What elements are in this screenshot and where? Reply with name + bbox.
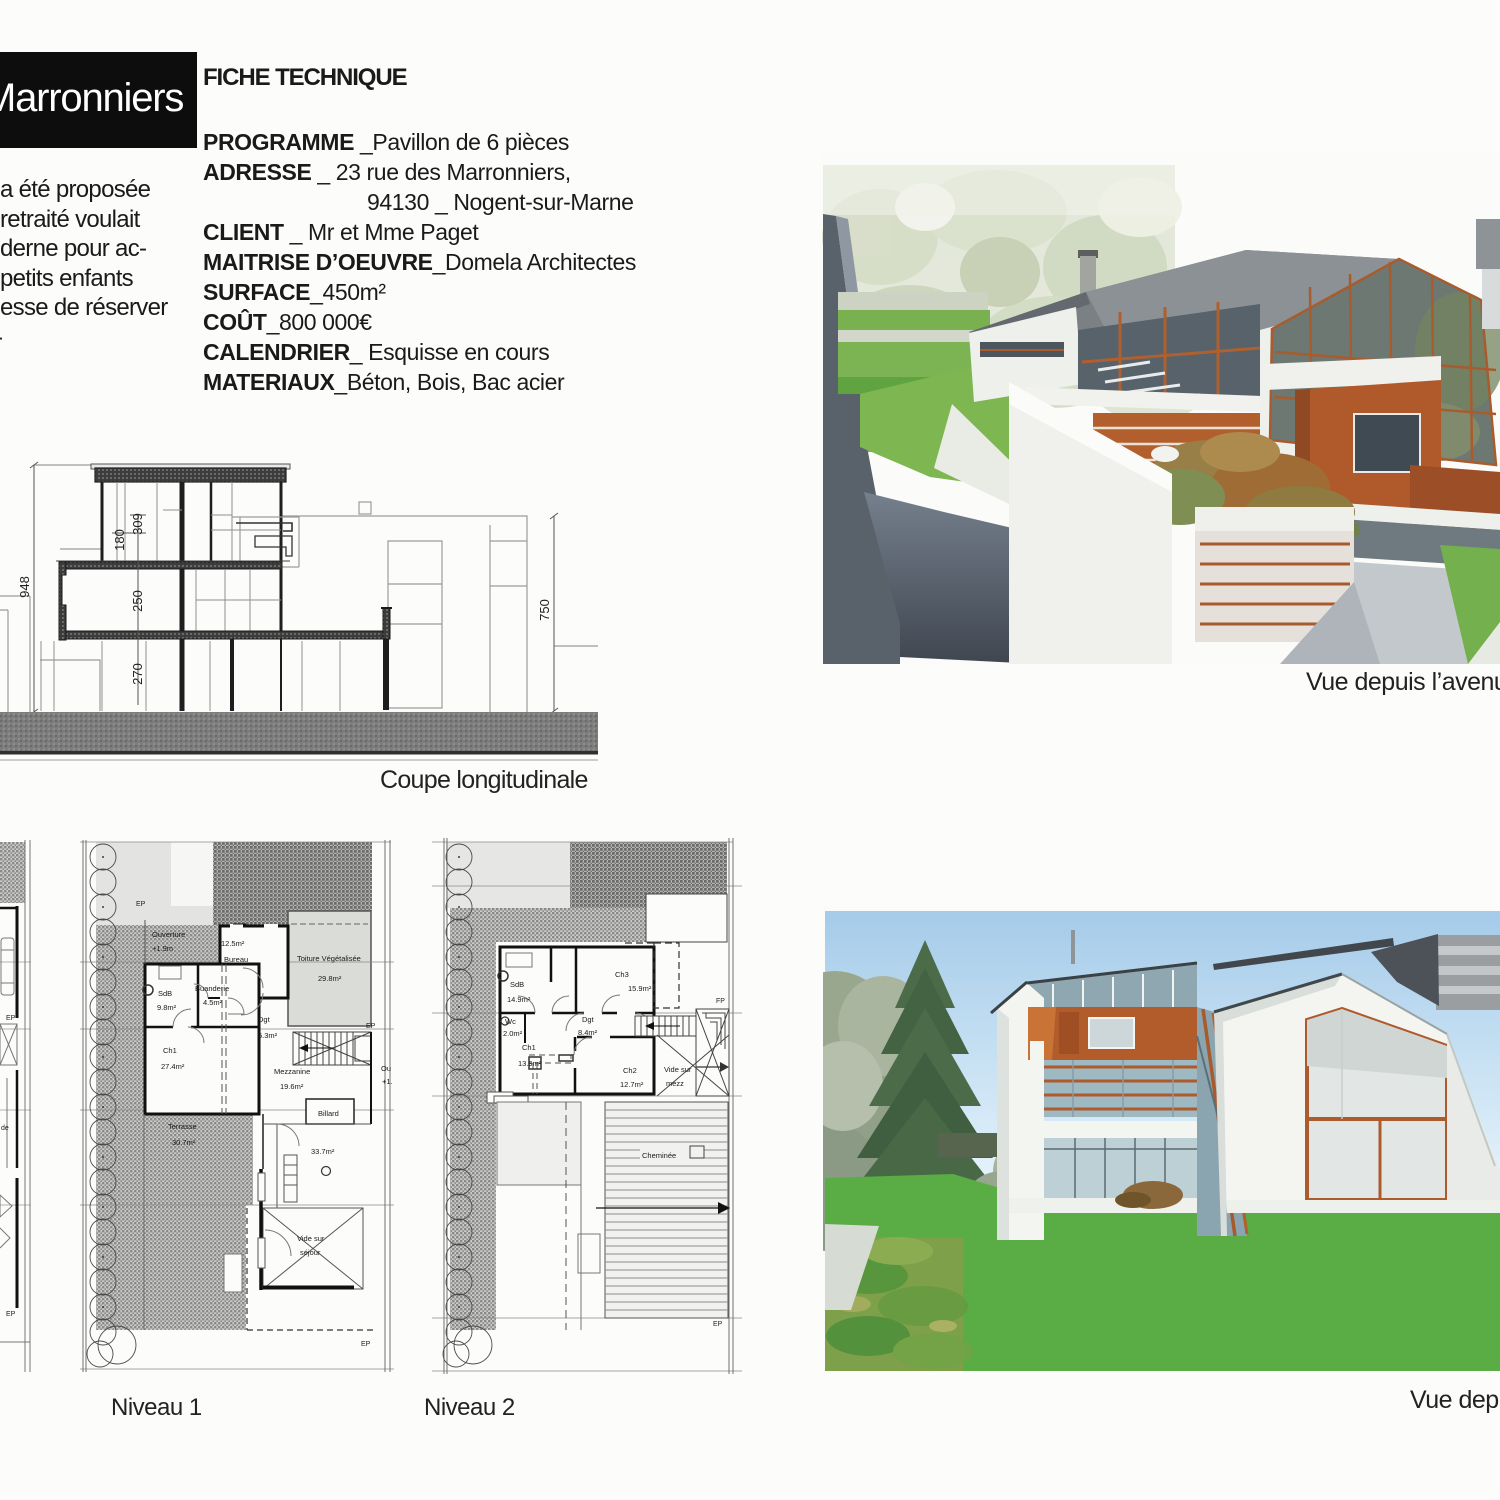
svg-text:SdB: SdB xyxy=(158,989,172,998)
svg-text:8.4m²: 8.4m² xyxy=(578,1028,598,1037)
svg-text:+1.9m: +1.9m xyxy=(152,944,173,953)
svg-text:250: 250 xyxy=(130,590,145,612)
svg-text:+1.: +1. xyxy=(382,1077,393,1086)
svg-text:12.5m²: 12.5m² xyxy=(221,939,245,948)
svg-text:309: 309 xyxy=(130,513,145,535)
svg-text:FP: FP xyxy=(716,998,725,1005)
svg-text:Ou: Ou xyxy=(381,1064,391,1073)
svg-text:Wc: Wc xyxy=(505,1017,516,1026)
svg-text:12.7m²: 12.7m² xyxy=(620,1080,644,1089)
svg-text:Toiture Végétalisée: Toiture Végétalisée xyxy=(297,954,361,963)
svg-text:Cheminée: Cheminée xyxy=(642,1151,676,1160)
svg-text:Terrasse: Terrasse xyxy=(168,1122,197,1131)
svg-text:Ch2: Ch2 xyxy=(623,1066,637,1075)
svg-text:948: 948 xyxy=(17,576,32,598)
svg-text:5.3m²: 5.3m² xyxy=(258,1031,278,1040)
svg-text:EP: EP xyxy=(136,901,146,908)
svg-text:Billard: Billard xyxy=(318,1109,339,1118)
svg-text:Vide sur: Vide sur xyxy=(297,1234,325,1243)
svg-text:Ch1: Ch1 xyxy=(163,1046,177,1055)
svg-text:EP: EP xyxy=(366,1023,376,1030)
svg-text:Mezzanine: Mezzanine xyxy=(274,1067,310,1076)
svg-text:4.5m²: 4.5m² xyxy=(203,998,223,1007)
svg-text:SdB: SdB xyxy=(510,980,524,989)
svg-text:13.9m²: 13.9m² xyxy=(518,1059,542,1068)
svg-text:30.7m²: 30.7m² xyxy=(172,1138,196,1147)
svg-text:750: 750 xyxy=(537,599,552,621)
svg-text:33.7m²: 33.7m² xyxy=(311,1147,335,1156)
svg-text:Ouverture: Ouverture xyxy=(152,930,185,939)
svg-text:14.9m²: 14.9m² xyxy=(507,995,531,1004)
svg-text:2.0m²: 2.0m² xyxy=(503,1029,523,1038)
svg-text:180: 180 xyxy=(112,529,127,551)
svg-text:27.4m²: 27.4m² xyxy=(161,1062,185,1071)
svg-text:9.8m²: 9.8m² xyxy=(157,1003,177,1012)
svg-text:Vide sur: Vide sur xyxy=(664,1065,692,1074)
svg-text:15.9m²: 15.9m² xyxy=(628,984,652,993)
svg-text:EP: EP xyxy=(361,1341,371,1348)
svg-text:Ch3: Ch3 xyxy=(615,970,629,979)
svg-text:29.8m²: 29.8m² xyxy=(318,974,342,983)
svg-text:Buanderie: Buanderie xyxy=(195,984,229,993)
svg-text:de: de xyxy=(1,1125,9,1132)
svg-text:Bureau: Bureau xyxy=(224,955,248,964)
svg-text:19.6m²: 19.6m² xyxy=(280,1082,304,1091)
svg-text:EP: EP xyxy=(713,1321,723,1328)
svg-text:Dgt: Dgt xyxy=(258,1015,271,1024)
svg-text:Ch1: Ch1 xyxy=(522,1043,536,1052)
svg-text:séjour: séjour xyxy=(300,1248,321,1257)
svg-text:EP: EP xyxy=(6,1015,16,1022)
svg-text:270: 270 xyxy=(130,663,145,685)
svg-text:mezz: mezz xyxy=(666,1079,684,1088)
svg-text:Dgt: Dgt xyxy=(582,1015,595,1024)
svg-text:EP: EP xyxy=(6,1311,16,1318)
